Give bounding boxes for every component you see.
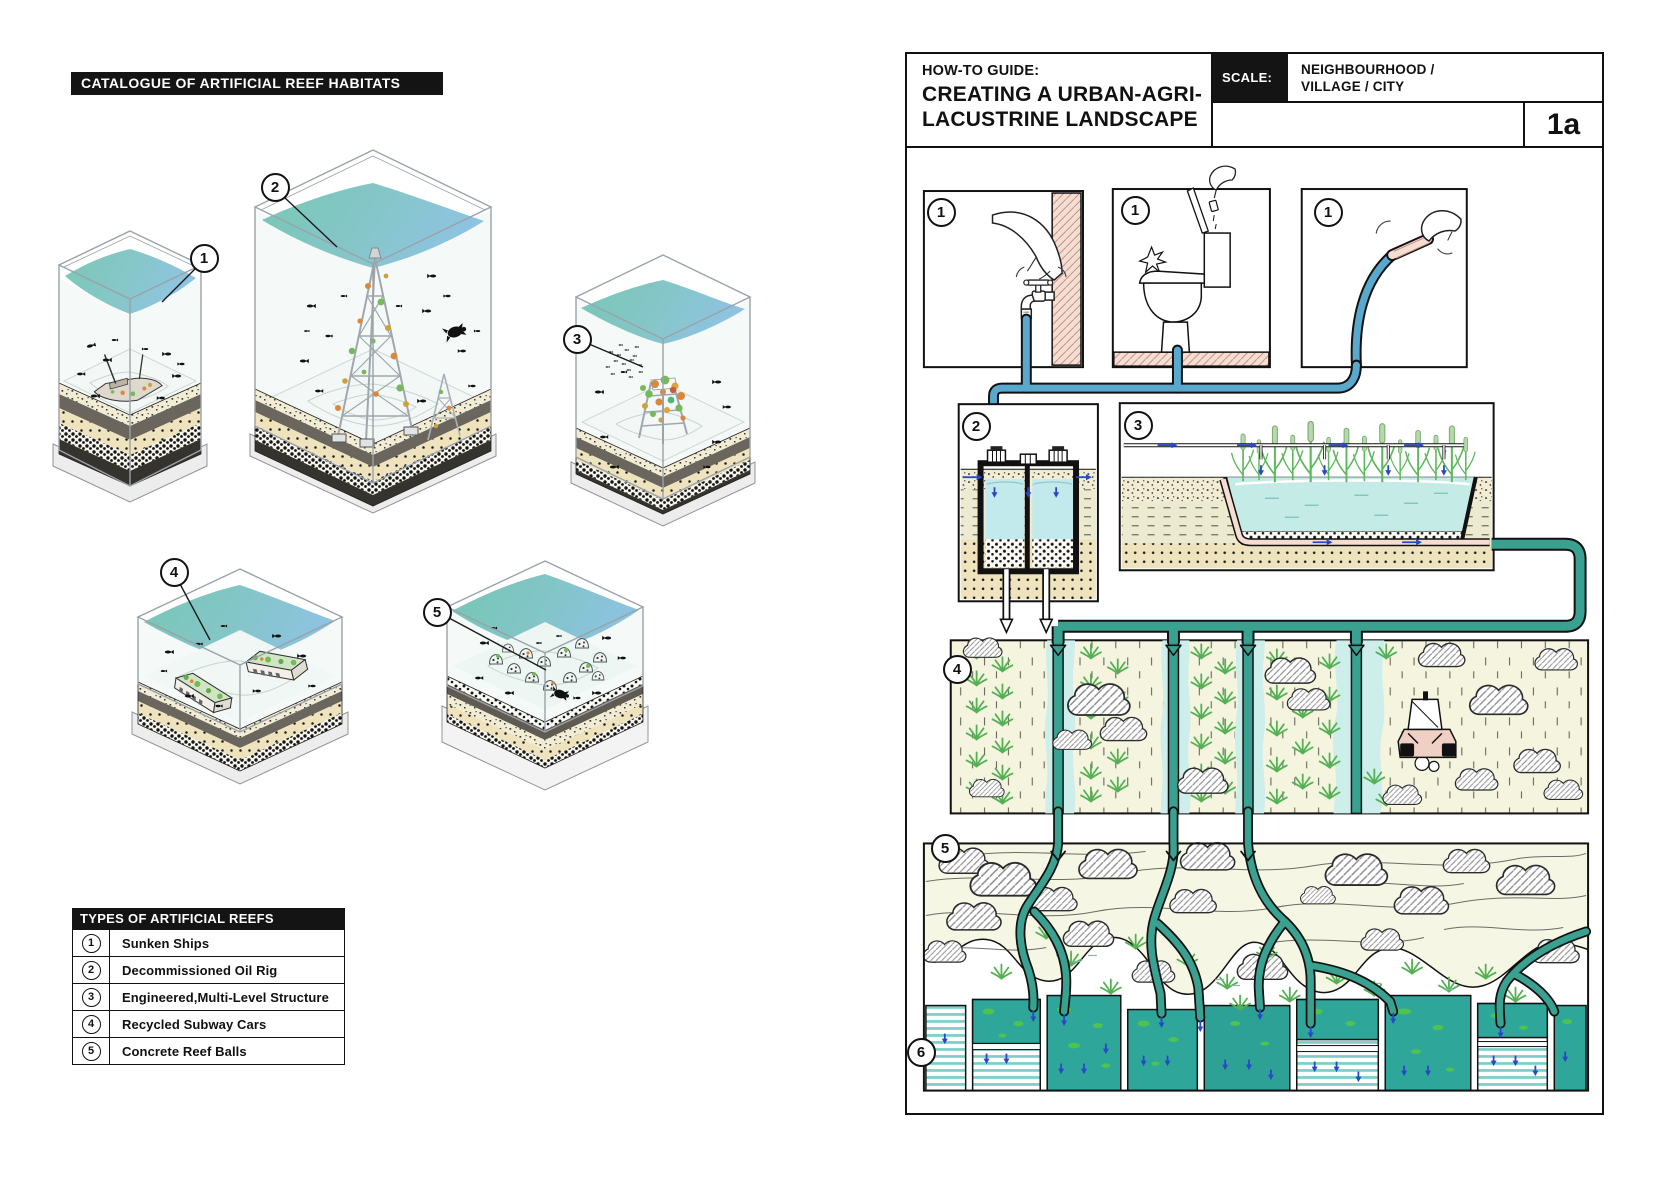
reef-case-oil-rig [248,146,498,546]
scale-value: NEIGHBOURHOOD / VILLAGE / CITY [1288,54,1602,101]
legend-num: 3 [82,988,101,1007]
scale-label: SCALE: [1213,54,1288,101]
reef-case-engineered-structure [568,252,758,547]
legend-label: Sunken Ships [110,936,209,951]
reef-case-subway-cars [128,566,353,796]
legend-num: 1 [82,934,101,953]
reef-types-legend: TYPES OF ARTIFICIAL REEFS 1 Sunken Ships… [72,908,345,1065]
wetland-box [1120,404,1494,571]
legend-row: 4 Recycled Subway Cars [73,1011,344,1038]
legend-label: Engineered,Multi-Level Structure [110,990,329,1005]
reef-case-sunken-ship [50,228,210,538]
poster-page: CATALOGUE OF ARTIFICIAL REEF HABITATS [0,0,1678,1190]
legend-title: TYPES OF ARTIFICIAL REEFS [72,908,345,930]
step-label-landscape: 5 [931,834,960,863]
step-label-tanks: 2 [962,412,991,441]
case-label-4: 4 [160,558,189,587]
guide-kicker: HOW-TO GUIDE: [922,63,1211,79]
hand-icon [1210,167,1236,191]
sheet-reference: 1a [1523,103,1602,146]
legend-num: 2 [82,961,101,980]
legend-label: Decommissioned Oil Rig [110,963,277,978]
step-label-wetland: 3 [1124,411,1153,440]
legend-row: 1 Sunken Ships [73,930,344,957]
guide-diagram [907,143,1602,1113]
step-label-fields: 4 [943,655,972,684]
legend-row: 5 Concrete Reef Balls [73,1038,344,1064]
fields-box [951,638,1588,813]
reef-case-reef-balls [438,558,653,815]
case-label-5: 5 [423,598,452,627]
guide-title-line2: LACUSTRINE LANDSCAPE [922,107,1211,132]
legend-num: 4 [82,1015,101,1034]
step-label-toilet: 1 [1121,196,1150,225]
titleblock: HOW-TO GUIDE: CREATING A URBAN-AGRI- LAC… [907,54,1602,148]
step-label-basins: 6 [907,1038,936,1067]
step-label-hose: 1 [1314,198,1343,227]
legend-label: Concrete Reef Balls [110,1044,247,1059]
legend-num: 5 [82,1042,101,1061]
legend-row: 2 Decommissioned Oil Rig [73,957,344,984]
legend-label: Recycled Subway Cars [110,1017,266,1032]
guide-title-line1: CREATING A URBAN-AGRI- [922,82,1211,107]
legend-row: 3 Engineered,Multi-Level Structure [73,984,344,1011]
case-label-3: 3 [563,325,592,354]
catalogue-title: CATALOGUE OF ARTIFICIAL REEF HABITATS [71,72,443,95]
step-label-tap: 1 [927,198,956,227]
how-to-guide-panel: HOW-TO GUIDE: CREATING A URBAN-AGRI- LAC… [905,52,1604,1115]
case-label-2: 2 [261,173,290,202]
case-label-1: 1 [190,244,219,273]
